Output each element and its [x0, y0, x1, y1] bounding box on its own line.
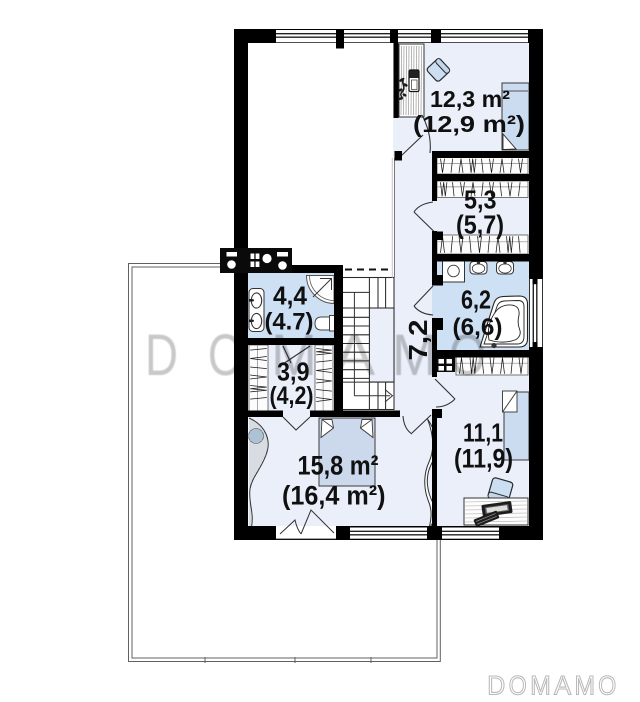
svg-text:O: O: [449, 323, 486, 388]
svg-text:(16,4 m²): (16,4 m²): [282, 481, 386, 511]
svg-text:D: D: [487, 671, 505, 701]
svg-text:6,2: 6,2: [461, 285, 491, 315]
svg-text:D: D: [145, 323, 178, 388]
svg-text:4,4: 4,4: [273, 281, 307, 311]
svg-text:O: O: [208, 323, 243, 388]
svg-text:(12,9 m²): (12,9 m²): [413, 111, 525, 137]
svg-text:A: A: [554, 671, 571, 701]
svg-text:M: M: [392, 323, 437, 388]
svg-text:M: M: [575, 671, 596, 701]
svg-text:12,3 m²: 12,3 m²: [430, 86, 510, 112]
svg-text:O: O: [598, 671, 616, 701]
svg-text:O: O: [509, 671, 527, 701]
svg-text:M: M: [271, 323, 317, 388]
svg-text:(11,9): (11,9): [454, 444, 513, 474]
svg-text:(5,7): (5,7): [456, 210, 504, 240]
svg-text:M: M: [530, 671, 551, 701]
svg-text:15,8 m²: 15,8 m²: [298, 451, 379, 481]
svg-text:A: A: [334, 323, 375, 388]
